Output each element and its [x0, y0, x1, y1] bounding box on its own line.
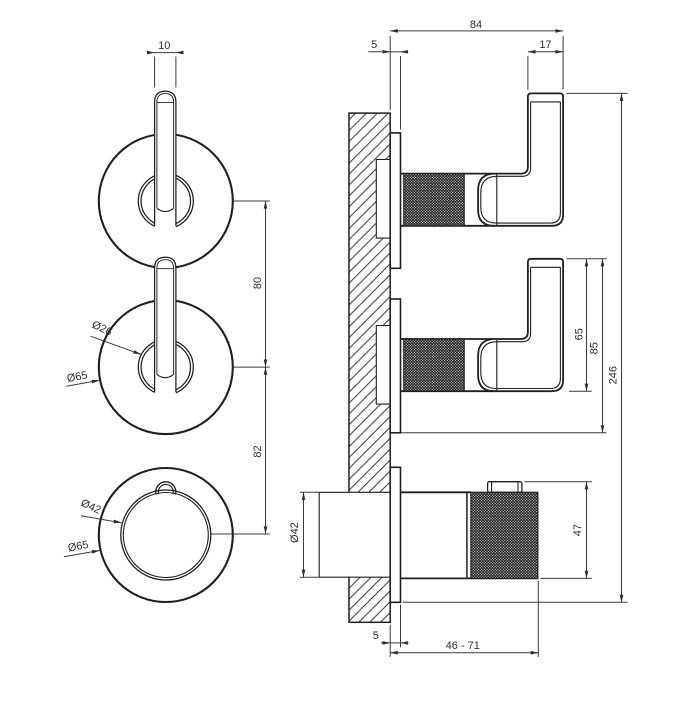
svg-text:10: 10 — [158, 40, 170, 52]
svg-text:80: 80 — [252, 277, 264, 289]
svg-text:5: 5 — [371, 39, 377, 51]
svg-text:Ø42: Ø42 — [289, 522, 301, 543]
svg-text:Ø26: Ø26 — [90, 319, 114, 339]
svg-text:Ø65: Ø65 — [67, 539, 90, 555]
svg-text:Ø42: Ø42 — [79, 497, 103, 517]
svg-text:5: 5 — [373, 630, 379, 642]
svg-text:246: 246 — [608, 366, 620, 384]
svg-text:84: 84 — [470, 19, 482, 31]
svg-text:85: 85 — [588, 342, 600, 354]
svg-text:47: 47 — [572, 524, 584, 536]
svg-text:82: 82 — [252, 445, 264, 457]
svg-text:65: 65 — [573, 328, 585, 340]
svg-text:17: 17 — [539, 39, 551, 51]
svg-text:46 - 71: 46 - 71 — [446, 640, 480, 652]
